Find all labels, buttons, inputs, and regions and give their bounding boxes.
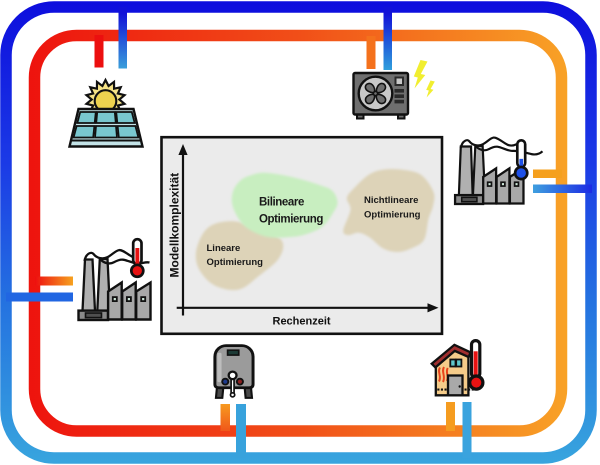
- svg-text:Optimierung: Optimierung: [364, 210, 421, 221]
- svg-text:Optimierung: Optimierung: [207, 257, 264, 268]
- svg-text:Modellkomplexität: Modellkomplexität: [168, 173, 182, 278]
- svg-text:Lineare: Lineare: [207, 243, 241, 254]
- svg-text:Rechenzeit: Rechenzeit: [273, 316, 331, 328]
- svg-text:Optimierung: Optimierung: [259, 214, 323, 226]
- svg-text:Bilineare: Bilineare: [259, 197, 304, 209]
- svg-text:Nichtlineare: Nichtlineare: [364, 195, 418, 206]
